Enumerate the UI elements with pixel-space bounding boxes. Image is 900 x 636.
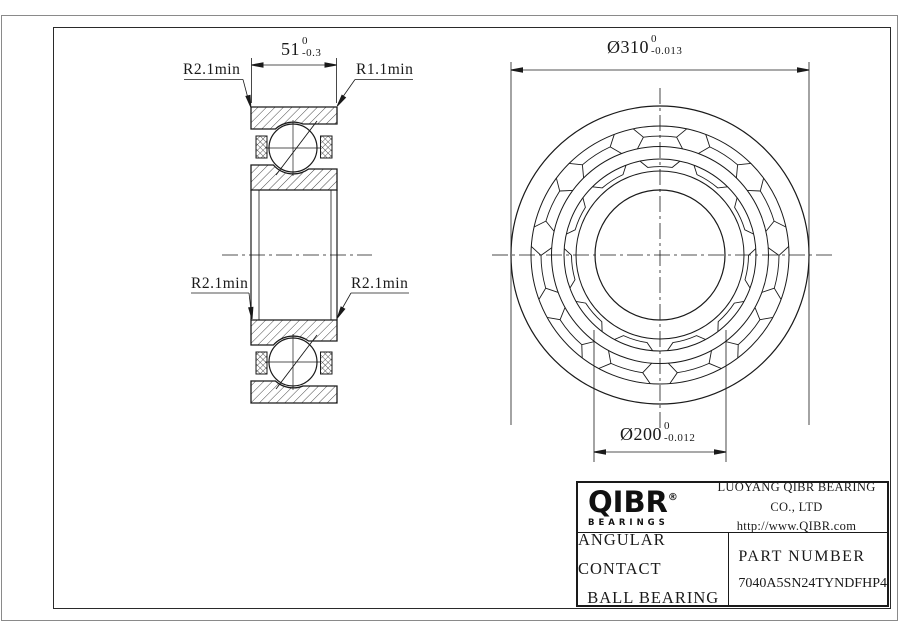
part-number-cell: PART NUMBER 7040A5SN24TYNDFHP4 — [729, 533, 887, 606]
logo-text: QIBR — [588, 485, 668, 519]
product-line-2: BALL BEARING — [587, 584, 719, 613]
company-info: LUOYANG QIBR BEARING CO., LTD http://www… — [710, 478, 887, 536]
plan-view — [492, 62, 836, 462]
cage-right-bottom — [321, 352, 333, 374]
company-logo: QIBR® BEARINGS — [578, 488, 710, 528]
dim-bore-value: Ø200 — [620, 424, 662, 445]
cage-left-top — [256, 136, 267, 158]
product-description-cell: ANGULAR CONTACT BALL BEARING — [578, 533, 729, 606]
dim-bore-tol-lower: -0.012 — [664, 433, 695, 445]
dim-od-tol-lower: -0.013 — [651, 46, 682, 58]
part-number-label: PART NUMBER — [738, 548, 887, 566]
label-corner-radius-mid-left: R2.1min — [191, 275, 248, 293]
dim-width-tol-upper: 0 — [302, 36, 321, 48]
title-block: QIBR® BEARINGS LUOYANG QIBR BEARING CO.,… — [576, 481, 889, 607]
label-corner-radius-top-left: R2.1min — [183, 61, 240, 79]
cross-section-view — [184, 58, 413, 403]
product-line-1: ANGULAR CONTACT — [578, 526, 728, 584]
part-number-value: 7040A5SN24TYNDFHP4 — [738, 576, 887, 592]
dim-bore-diameter: Ø200 0 -0.012 — [620, 424, 695, 445]
dim-width-value: 51 — [281, 39, 300, 60]
dim-outer-diameter: Ø310 0 -0.013 — [607, 37, 682, 58]
dim-bore-tol-upper: 0 — [664, 421, 695, 433]
title-block-lower-row: ANGULAR CONTACT BALL BEARING PART NUMBER… — [578, 533, 887, 606]
cage-right-top — [321, 136, 333, 158]
cage-pocket — [667, 336, 721, 384]
dim-od-tol-upper: 0 — [651, 34, 682, 46]
registered-trademark-icon: ® — [668, 492, 678, 503]
dim-width-lines — [252, 58, 337, 103]
dim-od-value: Ø310 — [607, 37, 649, 58]
dim-width-tol-lower: -0.3 — [302, 48, 321, 60]
label-corner-radius-top-right: R1.1min — [356, 61, 413, 79]
cage-pocket — [599, 336, 653, 384]
cage-left-bottom — [256, 352, 267, 374]
label-corner-radius-mid-right: R2.1min — [351, 275, 408, 293]
dim-width: 51 0 -0.3 — [281, 39, 321, 60]
engineering-drawing-page: { "drawing": { "left_view": { "dim_width… — [0, 0, 900, 636]
company-name: LUOYANG QIBR BEARING CO., LTD — [710, 478, 883, 517]
